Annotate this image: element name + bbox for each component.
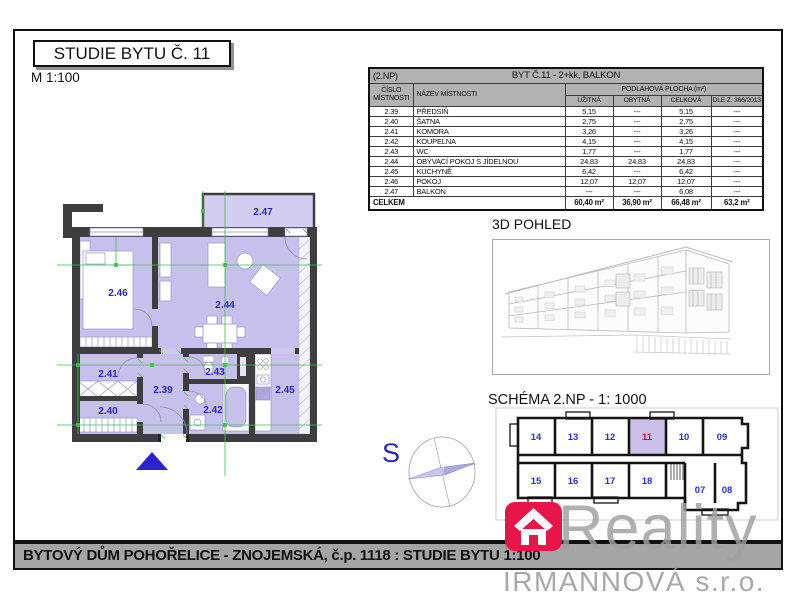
total-label: CELKEM — [369, 197, 565, 211]
footer-title: BYTOVÝ DŮM POHOŘELICE - ZNOJEMSKÁ, č.p. … — [23, 547, 540, 564]
table-cell: 1,77 — [661, 147, 711, 157]
table-cell: KOMORA — [413, 127, 565, 137]
schema-unit-10: 10 — [679, 432, 690, 443]
table-cell: 5,15 — [661, 107, 711, 117]
room-label-242: 2.42 — [203, 405, 223, 416]
total-celkova: 66,48 m² — [661, 197, 711, 211]
schema-unit-18: 18 — [642, 476, 653, 487]
table-row: 2.44OBÝVACÍ POKOJ S JÍDELNOU24,8324,8324… — [369, 157, 763, 167]
table-header-row: ČÍSLOMÍSTNOSTI NÁZEV MÍSTNOSTI PODLAHOVÁ… — [369, 84, 763, 96]
table-cell: 2.44 — [369, 157, 413, 167]
table-cell: 6,42 — [565, 167, 613, 177]
table-row: 2.42KOUPELNA4,15---4,15--- — [369, 137, 763, 147]
table-cell: --- — [613, 187, 661, 197]
table-cell: 2.41 — [369, 127, 413, 137]
table-cell: 2.40 — [369, 117, 413, 127]
table-cell: 24,83 — [661, 157, 711, 167]
schema-unit-11: 11 — [642, 432, 653, 443]
table-cell: POKOJ — [413, 177, 565, 187]
north-triangle — [136, 452, 168, 470]
table-cell: --- — [565, 187, 613, 197]
col-header-obytna: OBYTNÁ — [613, 96, 661, 107]
room-label-245: 2.45 — [275, 385, 295, 396]
table-cell: 3,26 — [661, 127, 711, 137]
table-cell: BALKON — [413, 187, 565, 197]
room-label-244: 2.44 — [215, 300, 235, 311]
table-cell: KUCHYNĚ — [413, 167, 565, 177]
view3d-heading: 3D POHLED — [492, 216, 571, 232]
area-table: (2.NP) BYT Č.11 - 2+kk, BALKON ČÍSLOMÍST… — [368, 67, 764, 211]
schema-unit-17: 17 — [605, 476, 616, 487]
apartment-title: BYT Č.11 - 2+kk, BALKON — [512, 70, 620, 81]
view3d-box — [492, 239, 770, 375]
table-cell: ŠATNA — [413, 117, 565, 127]
table-cell: --- — [613, 137, 661, 147]
table-row: 2.40ŠATNA2,75---2,75--- — [369, 117, 763, 127]
room-label-241: 2.41 — [98, 369, 118, 380]
room-label-240: 2.40 — [98, 406, 118, 417]
table-cell: --- — [711, 157, 763, 167]
room-label-239: 2.39 — [153, 385, 173, 396]
table-cell: 3,26 — [565, 127, 613, 137]
total-dle: 63,2 m² — [711, 197, 763, 211]
plan-sheet: STUDIE BYTU Č. 11 M 1:100 — [0, 0, 800, 600]
page-title: STUDIE BYTU Č. 11 — [54, 44, 211, 63]
col-header-area-group: PODLAHOVÁ PLOCHA (m²) — [565, 84, 763, 96]
schema-unit-09: 09 — [717, 432, 728, 443]
total-obytna: 36,90 m² — [613, 197, 661, 211]
table-cell: OBÝVACÍ POKOJ S JÍDELNOU — [413, 157, 565, 167]
room-label-247: 2.47 — [253, 207, 273, 218]
schema-unit-07: 07 — [695, 485, 706, 496]
total-uzitna: 60,40 m² — [565, 197, 613, 211]
table-cell: --- — [711, 137, 763, 147]
table-cell: --- — [711, 127, 763, 137]
table-cell: PŘEDSÍŇ — [413, 107, 565, 117]
table-cell: --- — [613, 167, 661, 177]
col-header-uzitna: UŽITNÁ — [565, 96, 613, 107]
table-cell: 6,08 — [661, 187, 711, 197]
table-row: 2.47BALKON------6,08--- — [369, 187, 763, 197]
floor-label: (2.NP) — [373, 69, 398, 83]
schema-unit-08: 08 — [722, 485, 733, 496]
table-cell: 5,15 — [565, 107, 613, 117]
table-row: 2.45KUCHYNĚ6,42---6,42--- — [369, 167, 763, 177]
schema-unit-14: 14 — [531, 432, 542, 443]
table-cell: 24,83 — [565, 157, 613, 167]
table-cell: 2.45 — [369, 167, 413, 177]
company-name: IRMANNOVÁ s.r.o. — [503, 566, 765, 598]
table-cell: --- — [613, 127, 661, 137]
compass-needle — [409, 467, 444, 479]
table-cell: 12,07 — [565, 177, 613, 187]
compass: S — [378, 428, 493, 516]
col-header-name: NÁZEV MÍSTNOSTI — [413, 84, 565, 107]
table-cell: 2.46 — [369, 177, 413, 187]
table-cell: --- — [711, 107, 763, 117]
table-cell: 2.43 — [369, 147, 413, 157]
schema-unit-15: 15 — [531, 476, 542, 487]
schema-unit-12: 12 — [605, 432, 616, 443]
table-cell: 2.42 — [369, 137, 413, 147]
table-cell: --- — [711, 177, 763, 187]
floor-schema: 14 13 12 11 10 09 15 16 17 18 07 08 — [494, 406, 790, 526]
room-label-246: 2.46 — [108, 288, 128, 299]
table-cell: 24,83 — [613, 157, 661, 167]
table-cell: 12,07 — [661, 177, 711, 187]
table-row: 2.41KOMORA3,26---3,26--- — [369, 127, 763, 137]
hatched-strip — [299, 237, 310, 434]
table-row: 2.43WC1,77---1,77--- — [369, 147, 763, 157]
compass-needle-2 — [444, 463, 475, 475]
col-header-number: ČÍSLOMÍSTNOSTI — [369, 84, 413, 107]
table-cell: KOUPELNA — [413, 137, 565, 147]
table-cell: --- — [711, 187, 763, 197]
table-cell: --- — [711, 147, 763, 157]
table-cell: 2.39 — [369, 107, 413, 117]
col-header-dle: DLE Z. 366/2013 sb — [711, 96, 763, 107]
table-cell: 2,75 — [565, 117, 613, 127]
table-cell: --- — [711, 167, 763, 177]
table-cell: 2.47 — [369, 187, 413, 197]
building-3d-sketch — [493, 240, 769, 374]
table-row: 2.46POKOJ12,0712,0712,07--- — [369, 177, 763, 187]
schema-unit-16: 16 — [568, 476, 579, 487]
scale-label: M 1:100 — [31, 70, 80, 85]
compass-south-label: S — [382, 438, 400, 468]
schema-unit-13: 13 — [568, 432, 579, 443]
footer-bar: BYTOVÝ DŮM POHOŘELICE - ZNOJEMSKÁ, č.p. … — [13, 542, 783, 570]
table-cell: 4,15 — [565, 137, 613, 147]
table-body: 2.39PŘEDSÍŇ5,15---5,15---2.40ŠATNA2,75--… — [369, 107, 763, 197]
room-label-243: 2.43 — [205, 367, 225, 378]
title-box: STUDIE BYTU Č. 11 — [33, 40, 231, 67]
table-cell: 12,07 — [613, 177, 661, 187]
table-cell: 1,77 — [565, 147, 613, 157]
table-cell: --- — [711, 117, 763, 127]
table-cell: --- — [613, 107, 661, 117]
table-cell: 4,15 — [661, 137, 711, 147]
table-cell: WC — [413, 147, 565, 157]
floor-plan: 2.47 2.46 2.44 2.41 2.39 2.43 2.42 2.40 … — [57, 191, 322, 481]
table-cell: 6,42 — [661, 167, 711, 177]
table-total-row: CELKEM 60,40 m² 36,90 m² 66,48 m² 63,2 m… — [369, 197, 763, 211]
table-row: 2.39PŘEDSÍŇ5,15---5,15--- — [369, 107, 763, 117]
table-cell: --- — [613, 117, 661, 127]
table-cell: --- — [613, 147, 661, 157]
table-cell: 2,75 — [661, 117, 711, 127]
table-title-row: (2.NP) BYT Č.11 - 2+kk, BALKON — [369, 68, 763, 84]
col-header-celkova: CELKOVÁ — [661, 96, 711, 107]
